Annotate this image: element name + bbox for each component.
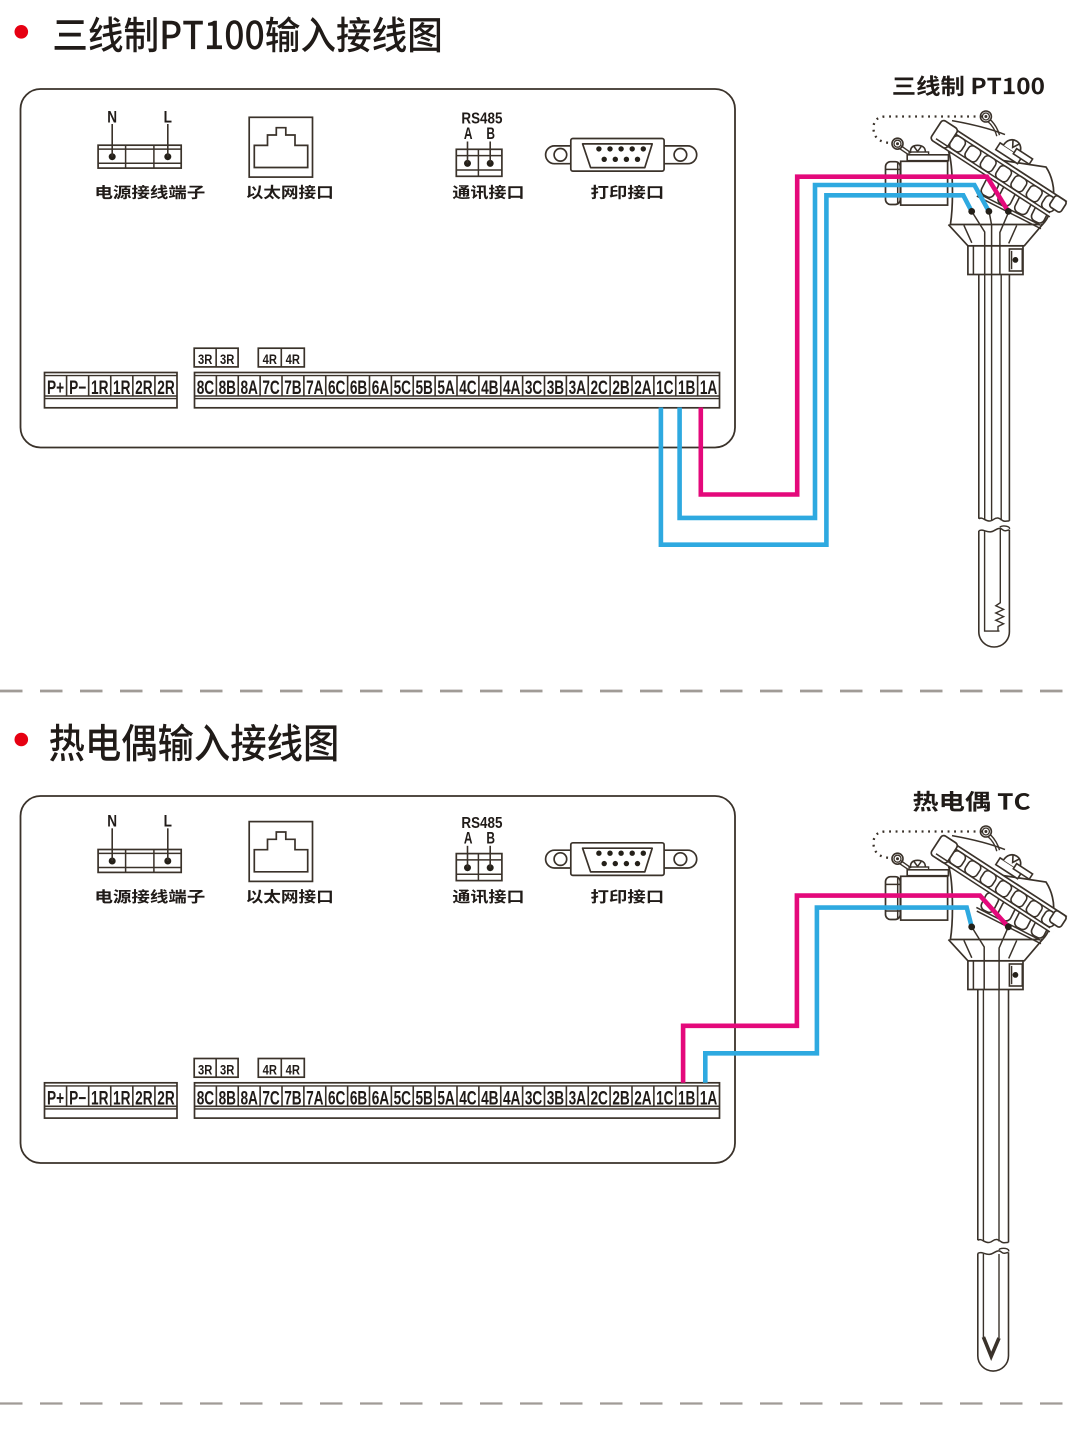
svg-text:1R: 1R <box>113 1087 131 1109</box>
svg-text:6A: 6A <box>372 1087 390 1109</box>
svg-text:4B: 4B <box>481 377 499 399</box>
svg-text:8C: 8C <box>197 377 215 399</box>
svg-text:2R: 2R <box>135 1087 153 1109</box>
svg-text:6C: 6C <box>328 1087 346 1109</box>
svg-text:4A: 4A <box>503 1087 521 1109</box>
svg-text:5C: 5C <box>394 377 412 399</box>
svg-text:4C: 4C <box>459 377 477 399</box>
svg-text:P+: P+ <box>47 1087 64 1109</box>
svg-text:A: A <box>464 125 473 143</box>
svg-text:3R: 3R <box>220 352 234 367</box>
svg-text:7B: 7B <box>284 377 302 399</box>
svg-text:3C: 3C <box>525 1087 543 1109</box>
svg-text:8A: 8A <box>240 377 258 399</box>
svg-text:5C: 5C <box>394 1087 412 1109</box>
svg-text:6A: 6A <box>372 377 390 399</box>
svg-text:7C: 7C <box>262 377 280 399</box>
svg-text:4A: 4A <box>503 377 521 399</box>
svg-text:1A: 1A <box>700 1087 718 1109</box>
svg-text:2C: 2C <box>590 377 608 399</box>
svg-text:4B: 4B <box>481 1087 499 1109</box>
svg-text:1B: 1B <box>678 1087 696 1109</box>
svg-text:4R: 4R <box>286 352 300 367</box>
svg-text:P−: P− <box>69 1087 86 1109</box>
svg-text:5A: 5A <box>437 377 455 399</box>
svg-text:2R: 2R <box>157 1087 175 1109</box>
svg-text:2B: 2B <box>612 1087 630 1109</box>
svg-text:L: L <box>164 812 172 831</box>
svg-text:4R: 4R <box>263 1062 277 1077</box>
svg-text:5B: 5B <box>415 377 433 399</box>
svg-text:N: N <box>107 108 117 127</box>
svg-text:1B: 1B <box>678 377 696 399</box>
svg-text:4R: 4R <box>286 1062 300 1077</box>
svg-text:3A: 3A <box>569 377 587 399</box>
svg-text:2A: 2A <box>634 1087 652 1109</box>
svg-text:7B: 7B <box>284 1087 302 1109</box>
svg-text:7A: 7A <box>306 1087 324 1109</box>
svg-text:8A: 8A <box>240 1087 258 1109</box>
svg-text:8B: 8B <box>219 377 237 399</box>
svg-text:B: B <box>486 125 495 143</box>
svg-text:8B: 8B <box>219 1087 237 1109</box>
svg-text:1C: 1C <box>656 1087 674 1109</box>
svg-text:8C: 8C <box>197 1087 215 1109</box>
svg-text:L: L <box>164 108 172 127</box>
svg-text:6C: 6C <box>328 377 346 399</box>
svg-text:3B: 3B <box>547 1087 565 1109</box>
svg-text:7A: 7A <box>306 377 324 399</box>
svg-text:1A: 1A <box>700 377 718 399</box>
svg-text:1R: 1R <box>113 377 131 399</box>
svg-text:3R: 3R <box>220 1062 234 1077</box>
svg-text:3R: 3R <box>198 352 212 367</box>
svg-text:B: B <box>486 830 495 848</box>
svg-text:4R: 4R <box>263 352 277 367</box>
svg-text:N: N <box>107 812 117 831</box>
svg-text:6B: 6B <box>350 1087 368 1109</box>
svg-text:2R: 2R <box>135 377 153 399</box>
svg-text:P+: P+ <box>47 377 64 399</box>
svg-text:2A: 2A <box>634 377 652 399</box>
svg-text:A: A <box>464 830 473 848</box>
svg-text:4C: 4C <box>459 1087 477 1109</box>
svg-text:3C: 3C <box>525 377 543 399</box>
svg-text:5A: 5A <box>437 1087 455 1109</box>
svg-text:2C: 2C <box>590 1087 608 1109</box>
svg-text:1C: 1C <box>656 377 674 399</box>
svg-text:3B: 3B <box>547 377 565 399</box>
svg-text:5B: 5B <box>415 1087 433 1109</box>
svg-text:1R: 1R <box>91 377 109 399</box>
svg-text:2B: 2B <box>612 377 630 399</box>
svg-text:P−: P− <box>69 377 86 399</box>
svg-text:2R: 2R <box>157 377 175 399</box>
svg-text:1R: 1R <box>91 1087 109 1109</box>
svg-text:3R: 3R <box>198 1062 212 1077</box>
svg-text:3A: 3A <box>569 1087 587 1109</box>
svg-text:6B: 6B <box>350 377 368 399</box>
svg-text:7C: 7C <box>262 1087 280 1109</box>
